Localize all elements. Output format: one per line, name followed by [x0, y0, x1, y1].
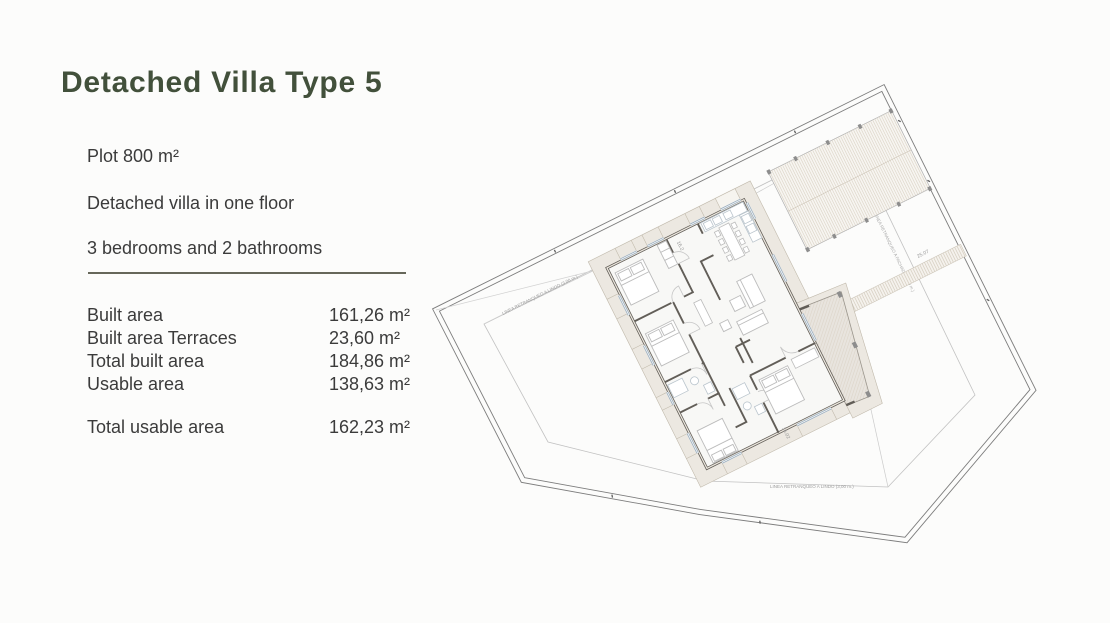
svg-text:LINEA RETRANQUEO A LINDO (3,00: LINEA RETRANQUEO A LINDO (3,00 m.) — [501, 274, 579, 316]
svg-text:25.07: 25.07 — [916, 249, 930, 260]
svg-text:LINEA RETRANQUEO A LINDO (3,00: LINEA RETRANQUEO A LINDO (3,00 m.) — [770, 484, 854, 489]
